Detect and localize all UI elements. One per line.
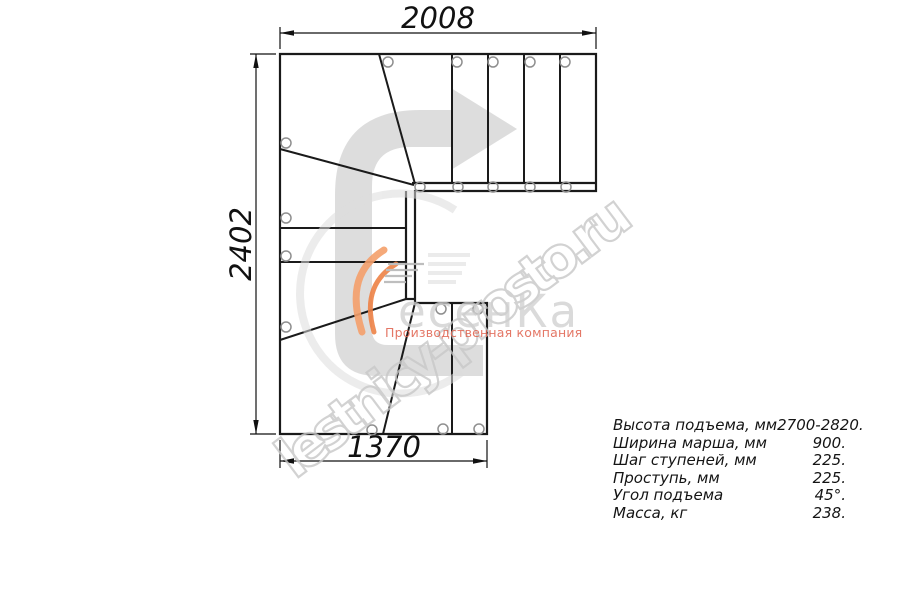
- dimension-top-label: 2008: [401, 1, 475, 35]
- dimension-top: 2008: [280, 1, 596, 49]
- spec-label: Угол подъема: [613, 487, 723, 505]
- spec-row-angle: Угол подъема 45°.: [613, 487, 846, 505]
- spec-label: Шаг ступеней, мм: [613, 452, 757, 470]
- spec-value: 225.: [813, 470, 846, 488]
- flame-icon-inner: [370, 264, 396, 332]
- spec-value: 45°.: [815, 487, 846, 505]
- spec-label: Проступь, мм: [613, 470, 720, 488]
- spec-value: 238.: [813, 505, 846, 523]
- spec-row-height: Высота подъема, мм 2700-2820.: [613, 417, 846, 435]
- spec-value: 900.: [813, 435, 846, 453]
- brand-subtitle: Производственная компания: [385, 325, 555, 340]
- spec-label: Ширина марша, мм: [613, 435, 767, 453]
- spec-row-mass: Масса, кг 238.: [613, 505, 846, 523]
- dimension-left: 2402: [224, 54, 276, 434]
- spec-row-width: Ширина марша, мм 900.: [613, 435, 846, 453]
- spec-table: Высота подъема, мм 2700-2820. Ширина мар…: [613, 417, 846, 523]
- stair-drawing-page: 2008 2402 1370 lestnicy-prosto.ru: [0, 0, 900, 600]
- spec-label: Масса, кг: [613, 505, 687, 523]
- spec-row-step: Шаг ступеней, мм 225.: [613, 452, 846, 470]
- spec-value: 2700-2820.: [777, 417, 864, 435]
- spec-label: Высота подъема, мм: [613, 417, 777, 435]
- dimension-left-label: 2402: [224, 207, 258, 281]
- spec-value: 225.: [813, 452, 846, 470]
- spec-row-tread: Проступь, мм 225.: [613, 470, 846, 488]
